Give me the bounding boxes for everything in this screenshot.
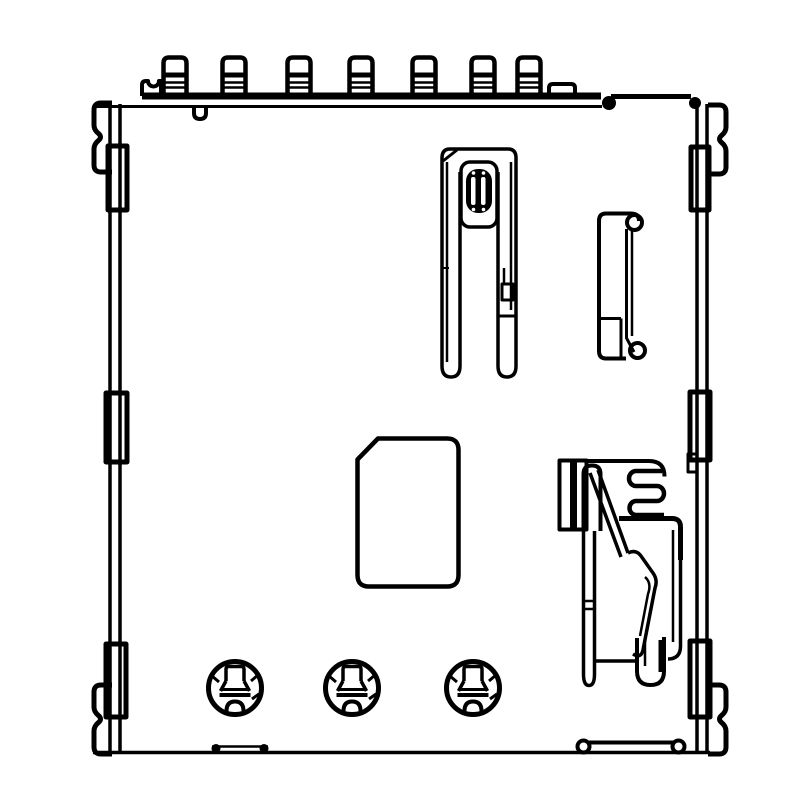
terminal-pin <box>350 58 373 98</box>
card-outline <box>358 439 459 587</box>
eject-spring-mechanism <box>560 454 698 686</box>
ring-bump <box>578 741 590 753</box>
connector-drawing <box>0 0 800 800</box>
technical-drawing-canvas: Monochrome engineering line drawing of a… <box>0 0 800 800</box>
plunger-icon <box>466 169 492 213</box>
ring-bump <box>673 741 685 753</box>
terminal-pin <box>288 58 311 98</box>
contact-rivet <box>209 662 262 715</box>
latch-blade <box>628 552 656 656</box>
side-edge-pads <box>106 146 710 717</box>
coil-spring <box>629 471 664 515</box>
side-mount-tabs <box>94 103 726 754</box>
edge-step-bump <box>602 96 616 110</box>
connector-body <box>93 81 710 753</box>
terminal-pin <box>472 58 495 98</box>
card-detect-switch <box>442 149 516 377</box>
top-terminal-pins <box>164 58 541 98</box>
edge-hook <box>194 107 206 119</box>
rolled-end-top <box>627 215 642 230</box>
terminal-pin <box>164 58 187 98</box>
corner-joint <box>689 97 701 109</box>
bottom-contact-rivets <box>209 662 500 715</box>
terminal-pin <box>223 58 246 98</box>
guide-bracket <box>599 214 645 359</box>
terminal-pin <box>413 58 436 98</box>
terminal-pin <box>518 58 541 98</box>
contact-rivet <box>326 662 379 715</box>
contact-rivet <box>447 662 500 715</box>
